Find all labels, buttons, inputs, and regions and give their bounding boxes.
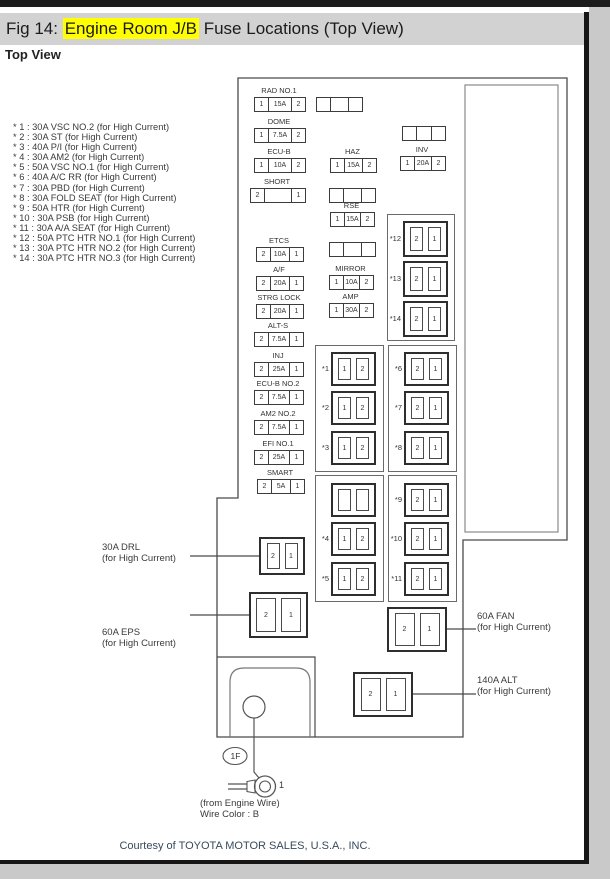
fuse-cell: 1: [330, 276, 344, 289]
fuse-cell: 20A: [271, 277, 290, 290]
fuse-cell: 5A: [272, 480, 291, 493]
fuse-cell: 1: [290, 421, 303, 434]
fuse-ref-5-label: *5: [311, 574, 329, 584]
fuse-cell: 2: [255, 391, 269, 404]
fuse-a-f: 220A1: [256, 276, 304, 291]
fuse-rse-label: RSE: [310, 201, 393, 211]
fuse-cell: 2: [360, 276, 373, 289]
fuse-ecu-b-no-2: 27.5A1: [254, 390, 304, 405]
fuse-blade: 2: [361, 678, 381, 711]
fuse-cell: 25A: [269, 363, 290, 376]
fuse-cell: 2: [432, 157, 445, 170]
fuse-dome: 17.5A2: [254, 128, 306, 143]
fuse-cell: 7.5A: [269, 421, 290, 434]
fuse-eps: 21: [249, 592, 308, 638]
fuse-ref-3: 12: [331, 431, 376, 465]
fuse-cell: 2: [255, 363, 269, 376]
fuse-cell: [349, 98, 362, 111]
fuse-cell: 1: [290, 391, 303, 404]
fuse-blade: 2: [411, 489, 424, 511]
fuse-blade: 1: [428, 307, 441, 331]
fuse-short: 21: [250, 188, 306, 203]
fuse-cell: 15A: [345, 159, 363, 172]
fuse-cell: [417, 127, 432, 140]
fuse-blade: 1: [428, 227, 441, 251]
fuse-ref-3-label: *3: [311, 443, 329, 453]
fuse-blade: 2: [356, 568, 369, 590]
fuse-ref-14-label: *14: [383, 314, 401, 324]
fuse-ref-2-label: *2: [311, 403, 329, 413]
fuse-cell: 1: [291, 480, 304, 493]
fuse-blade: [338, 489, 351, 511]
fuse-smart: 25A1: [257, 479, 305, 494]
fuse-blade: 2: [356, 437, 369, 459]
fuse-cell: 2: [257, 305, 271, 318]
fuse-ref-13: 21: [403, 261, 448, 297]
fuse-ref-2: 12: [331, 391, 376, 425]
callout-eps-title: 60A EPS: [102, 628, 176, 639]
fuse-cell: 2: [292, 159, 305, 172]
fuse-cell: 1: [401, 157, 415, 170]
fuse-cell: 1: [290, 248, 303, 261]
fuse-cell: 15A: [345, 213, 361, 226]
courtesy-line: Courtesy of TOYOTA MOTOR SALES, U.S.A., …: [0, 840, 490, 852]
fuse-drl: 21: [259, 537, 305, 575]
fuse-blade: 1: [429, 437, 442, 459]
fuse-fan: 21: [387, 607, 447, 652]
stud-wire-line: [254, 718, 259, 778]
fuse-am2-no-2-label: AM2 NO.2: [234, 409, 322, 419]
fuse-efi-no-1: 225A1: [254, 450, 304, 465]
fuse-dome-label: DOME: [234, 117, 324, 127]
fuse-blade: 1: [429, 528, 442, 550]
fuse-ref-9: 21: [404, 483, 449, 517]
fuse-blade: 2: [267, 543, 280, 569]
fuse-blade: 2: [410, 307, 423, 331]
fuse-alt-s: 27.5A1: [254, 332, 304, 347]
fuse-blade: 2: [356, 358, 369, 380]
callout-eps-subtitle: (for High Current): [102, 639, 176, 650]
fuse-rad-no-1-label: RAD NO.1: [234, 86, 324, 96]
fuse-cell: 2: [257, 277, 271, 290]
fuse-blade: 1: [386, 678, 406, 711]
callout-drl-title: 30A DRL: [102, 543, 176, 554]
fuse-blade: 1: [338, 528, 351, 550]
connector-stud-circle: [243, 696, 265, 718]
fuse-cell: 10A: [344, 276, 360, 289]
fuse-ref-5: 12: [331, 562, 376, 596]
wire-source-note: (from Engine Wire): [200, 799, 280, 810]
fuse-ref-6: 21: [404, 352, 449, 386]
fuse-blade: 1: [281, 598, 301, 632]
fuse-blade: 2: [410, 227, 423, 251]
fuse-cell: 20A: [271, 305, 290, 318]
fuse-blade: 2: [395, 613, 415, 646]
fuse-blade: 1: [285, 543, 298, 569]
fuse-cell: [432, 127, 445, 140]
fuse-blade: 2: [356, 397, 369, 419]
fuse-ref-6-label: *6: [384, 364, 402, 374]
fuse-blade: 1: [428, 267, 441, 291]
fuse-short-label: SHORT: [230, 177, 324, 187]
fuse-cell: 7.5A: [269, 333, 290, 346]
fuse-cell: 1: [255, 129, 269, 142]
fuse-ref-11: 21: [404, 562, 449, 596]
fuse-haz: 115A2: [330, 158, 377, 173]
fuse-smart-label: SMART: [237, 468, 323, 478]
fuse-blade: 1: [338, 568, 351, 590]
fuse-inj-label: INJ: [234, 351, 322, 361]
callout-alt-subtitle: (for High Current): [477, 687, 551, 698]
fuse-cell: 2: [258, 480, 272, 493]
fuse-cell: 30A: [344, 304, 360, 317]
callout-alt: 140A ALT(for High Current): [477, 676, 551, 697]
fuse-inj: 225A1: [254, 362, 304, 377]
fuse-blade: 2: [356, 528, 369, 550]
fuse-cell: 1: [290, 305, 303, 318]
fuse-cell: 7.5A: [269, 391, 290, 404]
fuse-inv-label: INV: [380, 145, 464, 155]
fuse-blade: 2: [411, 358, 424, 380]
fuse-cell: 1: [292, 189, 305, 202]
fuse-ref-11-label: *11: [384, 574, 402, 584]
relay-cavity-rect: [465, 85, 558, 532]
fuse-cell: 2: [255, 451, 269, 464]
callout-drl-subtitle: (for High Current): [102, 554, 176, 565]
fuse-strg-lock: 220A1: [256, 304, 304, 319]
callout-eps: 60A EPS(for High Current): [102, 628, 176, 649]
fuse-ref-10: 21: [404, 522, 449, 556]
callout-alt-title: 140A ALT: [477, 676, 551, 687]
fuse-blank: [329, 242, 376, 257]
fuse-cell: 1: [290, 333, 303, 346]
fuse-alt-s-label: ALT-S: [234, 321, 322, 331]
fuse-amp: 130A2: [329, 303, 374, 318]
ring-terminal-number: 1: [279, 780, 284, 790]
wire-color-note: Wire Color : B: [200, 810, 259, 821]
fuse-inv: 120A2: [400, 156, 446, 171]
callout-fan-title: 60A FAN: [477, 612, 551, 623]
fuse-cell: 1: [290, 363, 303, 376]
fuse-ref-10-label: *10: [384, 534, 402, 544]
fuse-amp-label: AMP: [309, 292, 392, 302]
fuse-cell: 1: [255, 159, 269, 172]
fuse-cell: 2: [360, 304, 373, 317]
ring-terminal-icon: [228, 776, 276, 797]
fuse-blank: [316, 97, 363, 112]
fuse-mirror: 110A2: [329, 275, 374, 290]
callout-fan: 60A FAN(for High Current): [477, 612, 551, 633]
fuse-blade: 1: [338, 437, 351, 459]
fuse-ref-1-label: *1: [311, 364, 329, 374]
fuse-blade: 2: [410, 267, 423, 291]
fuse-blade: 1: [429, 568, 442, 590]
fuse-ref-9-label: *9: [384, 495, 402, 505]
fuse-box-diagram: 1F 1 (from Engine Wire) Wire Color : B R…: [0, 0, 610, 879]
connector-1f-label: 1F: [224, 749, 247, 763]
fuse-cell: 2: [255, 421, 269, 434]
fuse-cell: [403, 127, 417, 140]
fuse-cell: [330, 243, 344, 256]
fuse-am2-no-2: 27.5A1: [254, 420, 304, 435]
fuse-cell: 10A: [271, 248, 290, 261]
fuse-blade: 2: [411, 568, 424, 590]
fuse-ref-8-label: *8: [384, 443, 402, 453]
fuse-blank-hc: [331, 483, 376, 517]
fuse-cell: [331, 98, 349, 111]
fuse-ref-12-label: *12: [383, 234, 401, 244]
fuse-blade: 1: [420, 613, 440, 646]
fuse-cell: 1: [330, 304, 344, 317]
fuse-cell: 7.5A: [269, 129, 292, 142]
fuse-ecu-b-no-2-label: ECU-B NO.2: [234, 379, 322, 389]
fuse-cell: [317, 98, 331, 111]
fuse-ref-8: 21: [404, 431, 449, 465]
fuse-cell: [265, 189, 292, 202]
fuse-etcs: 210A1: [256, 247, 304, 262]
fuse-cell: 15A: [269, 98, 292, 111]
fuse-blade: 1: [338, 397, 351, 419]
fuse-ref-4-label: *4: [311, 534, 329, 544]
fuse-cell: 2: [361, 213, 374, 226]
fuse-cell: 2: [257, 248, 271, 261]
fuse-cell: 1: [290, 451, 303, 464]
fuse-blade: 2: [411, 528, 424, 550]
fuse-cell: 2: [363, 159, 376, 172]
fuse-blade: [356, 489, 369, 511]
fuse-cell: 20A: [415, 157, 432, 170]
fuse-ref-12: 21: [403, 221, 448, 257]
fuse-efi-no-1-label: EFI NO.1: [234, 439, 322, 449]
fuse-ref-4: 12: [331, 522, 376, 556]
fuse-alt: 21: [353, 672, 413, 717]
fuse-cell: 1: [331, 213, 345, 226]
fuse-cell: 10A: [269, 159, 292, 172]
fuse-cell: 2: [255, 333, 269, 346]
fuse-cell: 1: [331, 159, 345, 172]
fuse-cell: 2: [292, 129, 305, 142]
fuse-etcs-label: ETCS: [236, 236, 322, 246]
fuse-blade: 2: [256, 598, 276, 632]
fuse-rse: 115A2: [330, 212, 375, 227]
fuse-blade: 1: [429, 358, 442, 380]
fuse-blade: 2: [411, 437, 424, 459]
fuse-blade: 1: [429, 397, 442, 419]
fuse-cell: 1: [290, 277, 303, 290]
fuse-cell: 1: [255, 98, 269, 111]
fuse-ref-7-label: *7: [384, 403, 402, 413]
fuse-ref-1: 12: [331, 352, 376, 386]
fuse-cell: [362, 243, 375, 256]
callout-drl: 30A DRL(for High Current): [102, 543, 176, 564]
connector-compartment-lines: [217, 657, 315, 737]
fuse-blade: 1: [429, 489, 442, 511]
fuse-mirror-label: MIRROR: [309, 264, 392, 274]
fuse-cell: 2: [251, 189, 265, 202]
fuse-ref-14: 21: [403, 301, 448, 337]
fuse-blade: 2: [411, 397, 424, 419]
fuse-ecu-b: 110A2: [254, 158, 306, 173]
fuse-cell: 2: [292, 98, 305, 111]
fuse-cell: [344, 243, 362, 256]
fuse-cell: 25A: [269, 451, 290, 464]
fuse-blank: [402, 126, 446, 141]
fuse-ref-13-label: *13: [383, 274, 401, 284]
fuse-rad-no-1: 115A2: [254, 97, 306, 112]
connector-pocket: [230, 668, 310, 737]
callout-fan-subtitle: (for High Current): [477, 623, 551, 634]
fuse-blade: 1: [338, 358, 351, 380]
fuse-ref-7: 21: [404, 391, 449, 425]
